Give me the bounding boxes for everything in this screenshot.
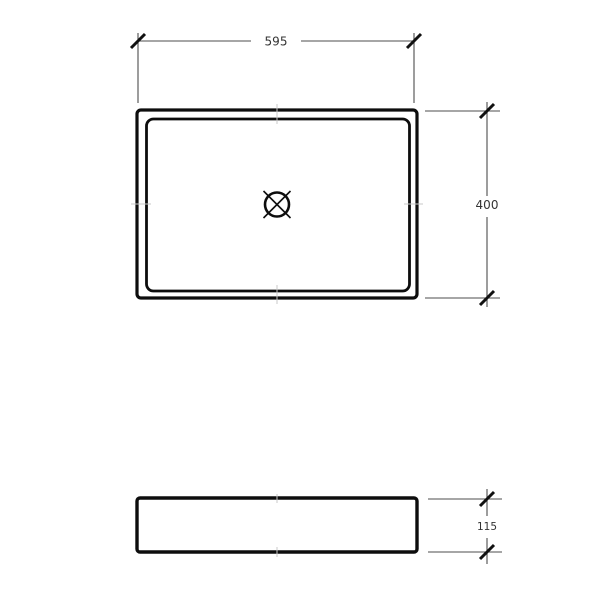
side-view <box>137 494 417 557</box>
thickness-dimension-label: 115 <box>477 521 497 533</box>
width-dimension-label: 595 <box>265 35 288 49</box>
drain-outlet-icon <box>264 191 291 218</box>
dimension-thickness: 115 <box>428 489 502 564</box>
dimension-width: 595 <box>131 33 421 103</box>
drawing-svg: 595 400 115 <box>0 0 600 600</box>
side-profile-edge <box>137 498 417 552</box>
height-dimension-label: 400 <box>476 198 499 212</box>
technical-drawing: 595 400 115 <box>0 0 600 600</box>
dimension-height: 400 <box>425 102 500 307</box>
plan-view <box>131 104 423 304</box>
